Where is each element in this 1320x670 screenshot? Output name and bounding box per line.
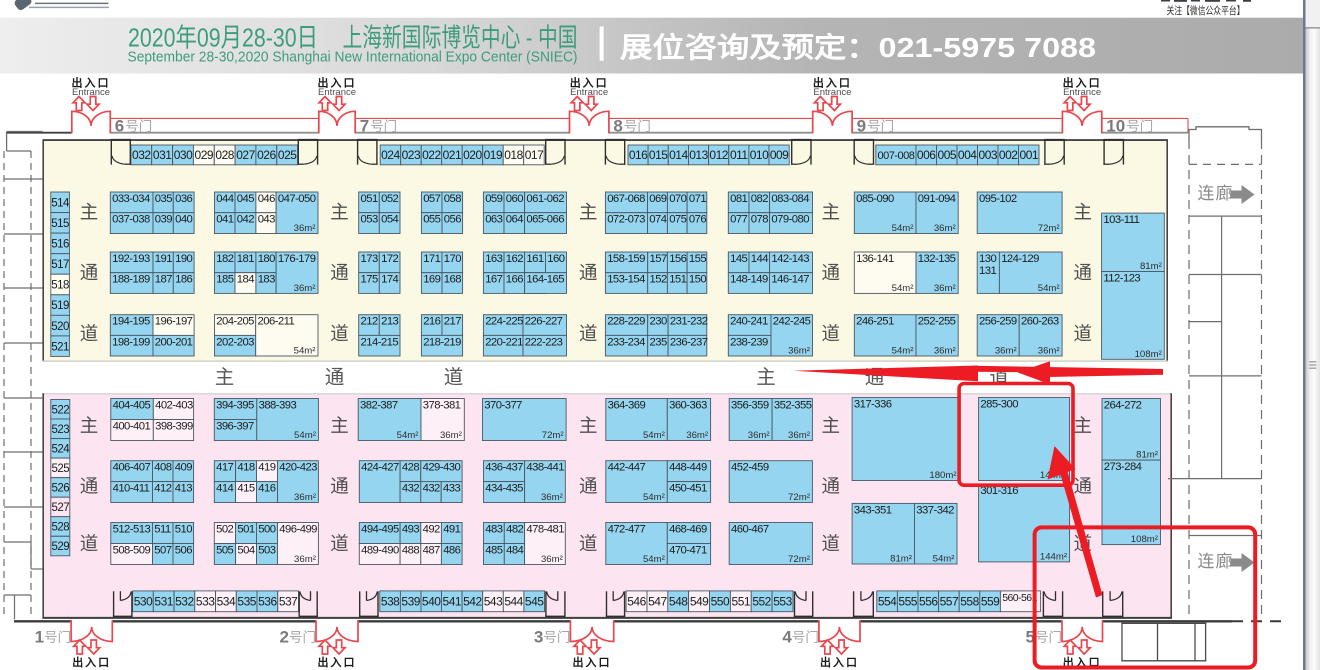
- svg-text:559: 559: [981, 595, 1000, 609]
- svg-text:524: 524: [51, 444, 70, 456]
- svg-text:526: 526: [51, 483, 69, 495]
- svg-text:488: 488: [402, 545, 419, 557]
- svg-text:204-205: 204-205: [216, 316, 254, 328]
- svg-text:527: 527: [51, 502, 69, 514]
- svg-text:054: 054: [381, 214, 398, 226]
- svg-text:出入口: 出入口: [573, 655, 612, 669]
- svg-text:021: 021: [443, 148, 462, 162]
- svg-text:通: 通: [80, 262, 99, 283]
- svg-text:号门: 号门: [1126, 119, 1153, 134]
- svg-text:535: 535: [237, 595, 256, 609]
- svg-text:36m²: 36m²: [788, 430, 811, 441]
- svg-text:036: 036: [175, 193, 192, 205]
- svg-text:053: 053: [361, 214, 378, 226]
- svg-text:214-215: 214-215: [361, 336, 399, 348]
- svg-text:230: 230: [650, 316, 667, 328]
- svg-text:531: 531: [154, 595, 173, 609]
- svg-text:36m²: 36m²: [748, 430, 771, 441]
- svg-text:222-223: 222-223: [525, 336, 563, 348]
- svg-text:157: 157: [650, 253, 667, 265]
- svg-text:主: 主: [756, 367, 776, 389]
- svg-text:通: 通: [579, 262, 598, 283]
- svg-text:434-435: 434-435: [485, 483, 523, 495]
- svg-text:095-102: 095-102: [979, 193, 1017, 205]
- svg-text:557: 557: [940, 595, 959, 609]
- svg-text:482: 482: [506, 524, 523, 536]
- svg-text:009: 009: [770, 148, 789, 162]
- svg-text:545: 545: [525, 595, 544, 609]
- svg-text:主: 主: [821, 202, 840, 223]
- svg-text:2: 2: [280, 628, 289, 647]
- svg-text:9: 9: [857, 116, 866, 135]
- svg-text:412: 412: [154, 483, 171, 495]
- svg-text:079-080: 079-080: [771, 214, 809, 226]
- svg-text:438-441: 438-441: [526, 462, 564, 474]
- svg-text:025: 025: [278, 148, 297, 162]
- svg-text:4: 4: [782, 628, 792, 647]
- svg-text:550: 550: [711, 595, 730, 609]
- svg-text:231-232: 231-232: [670, 316, 708, 328]
- svg-text:005: 005: [938, 148, 957, 162]
- svg-text:027: 027: [236, 148, 255, 162]
- svg-text:404-405: 404-405: [113, 400, 151, 412]
- svg-text:36m²: 36m²: [788, 346, 811, 357]
- svg-text:54m²: 54m²: [294, 346, 317, 357]
- svg-text:道: 道: [821, 533, 840, 554]
- svg-text:503: 503: [258, 545, 275, 557]
- svg-text:370-377: 370-377: [484, 400, 522, 412]
- svg-text:396-397: 396-397: [216, 421, 254, 433]
- svg-text:通: 通: [821, 475, 840, 496]
- svg-text:548: 548: [669, 595, 688, 609]
- svg-text:394-395: 394-395: [216, 400, 254, 412]
- svg-text:220-221: 220-221: [485, 336, 523, 348]
- svg-text:510: 510: [175, 524, 192, 536]
- svg-text:024: 024: [381, 148, 400, 162]
- svg-text:057: 057: [423, 193, 440, 205]
- svg-text:514: 514: [51, 198, 70, 210]
- svg-text:180m²: 180m²: [929, 470, 957, 481]
- svg-text:通: 通: [1073, 475, 1092, 496]
- svg-text:470-471: 470-471: [669, 545, 707, 557]
- svg-text:522: 522: [51, 405, 69, 417]
- svg-text:076: 076: [689, 214, 706, 226]
- svg-text:542: 542: [463, 595, 482, 609]
- svg-text:356-359: 356-359: [731, 400, 769, 412]
- svg-text:124-129: 124-129: [1001, 253, 1039, 265]
- svg-text:406-407: 406-407: [113, 462, 151, 474]
- svg-text:528: 528: [51, 522, 69, 534]
- svg-text:144: 144: [751, 253, 768, 265]
- svg-text:道: 道: [821, 323, 840, 344]
- svg-text:36m²: 36m²: [995, 346, 1018, 357]
- svg-text:409: 409: [175, 462, 192, 474]
- svg-text:112-123: 112-123: [1103, 273, 1140, 285]
- svg-text:040: 040: [175, 214, 192, 226]
- svg-text:道: 道: [80, 323, 99, 344]
- svg-text:534: 534: [217, 595, 236, 609]
- svg-text:54m²: 54m²: [294, 430, 317, 441]
- svg-text:547: 547: [648, 595, 667, 609]
- svg-text:道: 道: [330, 323, 349, 344]
- svg-text:148-149: 148-149: [730, 274, 768, 286]
- svg-text:541: 541: [443, 595, 462, 609]
- svg-text:54m²: 54m²: [892, 223, 915, 234]
- svg-text:212: 212: [361, 316, 378, 328]
- svg-text:72m²: 72m²: [788, 554, 811, 565]
- svg-text:号门: 号门: [543, 630, 570, 645]
- svg-text:010: 010: [750, 148, 769, 162]
- svg-text:432: 432: [402, 483, 419, 495]
- svg-text:出入口: 出入口: [820, 655, 859, 669]
- svg-text:378-381: 378-381: [423, 400, 461, 412]
- svg-text:400-401: 400-401: [113, 421, 151, 433]
- svg-text:424-427: 424-427: [361, 462, 399, 474]
- svg-text:064: 064: [506, 214, 523, 226]
- svg-text:通: 通: [325, 367, 345, 389]
- svg-text:156: 156: [669, 253, 686, 265]
- svg-text:551: 551: [732, 595, 751, 609]
- svg-text:164-165: 164-165: [526, 274, 564, 286]
- svg-text:517: 517: [51, 259, 69, 271]
- svg-text:029: 029: [195, 148, 214, 162]
- svg-text:043: 043: [258, 214, 275, 226]
- svg-text:060: 060: [506, 193, 523, 205]
- svg-text:364-369: 364-369: [608, 400, 646, 412]
- svg-text:10: 10: [1106, 116, 1125, 135]
- svg-text:246-251: 246-251: [856, 316, 894, 328]
- svg-text:36m²: 36m²: [541, 492, 564, 503]
- svg-text:501: 501: [237, 524, 254, 536]
- svg-text:085-090: 085-090: [856, 193, 894, 205]
- svg-text:012: 012: [709, 148, 728, 162]
- svg-text:162: 162: [506, 253, 523, 265]
- svg-text:主: 主: [1073, 202, 1092, 223]
- svg-text:关注【微信公众平台】: 关注【微信公众平台】: [1167, 4, 1245, 17]
- svg-text:150: 150: [689, 274, 706, 286]
- svg-text:529: 529: [51, 541, 69, 553]
- svg-text:224-225: 224-225: [485, 316, 523, 328]
- svg-text:103-111: 103-111: [1103, 214, 1139, 226]
- svg-text:018: 018: [504, 148, 523, 162]
- svg-text:161: 161: [526, 253, 543, 265]
- svg-text:226-227: 226-227: [525, 316, 563, 328]
- svg-text:36m²: 36m²: [934, 346, 957, 357]
- svg-text:169: 169: [423, 274, 440, 286]
- svg-text:168: 168: [444, 274, 461, 286]
- svg-text:042: 042: [237, 214, 254, 226]
- svg-text:072-073: 072-073: [607, 214, 645, 226]
- svg-text:020: 020: [463, 148, 482, 162]
- svg-text:046: 046: [258, 193, 275, 205]
- svg-text:228-229: 228-229: [607, 316, 645, 328]
- svg-text:414: 414: [216, 483, 233, 495]
- svg-text:065-066: 065-066: [526, 214, 564, 226]
- svg-text:343-351: 343-351: [854, 504, 892, 516]
- svg-text:131: 131: [979, 265, 996, 277]
- svg-text:538: 538: [381, 595, 400, 609]
- svg-text:158-159: 158-159: [607, 253, 645, 265]
- svg-text:36m²: 36m²: [1038, 346, 1061, 357]
- svg-text:236-237: 236-237: [670, 336, 708, 348]
- svg-text:185: 185: [216, 274, 233, 286]
- svg-text:主: 主: [215, 367, 235, 389]
- svg-text:202-203: 202-203: [216, 336, 254, 348]
- svg-text:号门: 号门: [370, 119, 397, 134]
- svg-text:056: 056: [444, 214, 461, 226]
- svg-text:022: 022: [422, 148, 441, 162]
- svg-text:543: 543: [484, 595, 503, 609]
- svg-text:410-411: 410-411: [113, 483, 150, 495]
- svg-text:556: 556: [919, 595, 938, 609]
- svg-text:172: 172: [381, 253, 398, 265]
- svg-text:36m²: 36m²: [294, 492, 317, 503]
- svg-text:484: 484: [506, 545, 523, 557]
- svg-text:240-241: 240-241: [730, 316, 768, 328]
- svg-text:出入口: 出入口: [72, 655, 111, 669]
- svg-text:033-034: 033-034: [112, 193, 150, 205]
- svg-text:连廊: 连廊: [1198, 552, 1234, 571]
- svg-text:496-499: 496-499: [279, 524, 317, 536]
- svg-text:192-193: 192-193: [112, 253, 150, 265]
- svg-text:36m²: 36m²: [294, 223, 317, 234]
- svg-text:558: 558: [960, 595, 979, 609]
- svg-text:174: 174: [381, 274, 398, 286]
- svg-text:144m²: 144m²: [1040, 551, 1068, 562]
- svg-text:6: 6: [115, 116, 124, 135]
- svg-text:415: 415: [237, 483, 254, 495]
- svg-text:号门: 号门: [1035, 630, 1062, 645]
- svg-text:055: 055: [423, 214, 440, 226]
- svg-text:252-255: 252-255: [918, 316, 956, 328]
- svg-text:36m²: 36m²: [294, 283, 317, 294]
- svg-text:273-284: 273-284: [1104, 461, 1142, 473]
- svg-text:260-263: 260-263: [1021, 316, 1059, 328]
- svg-text:468-469: 468-469: [669, 524, 707, 536]
- svg-text:171: 171: [423, 253, 440, 265]
- svg-text:001: 001: [1020, 148, 1039, 162]
- svg-text:317-336: 317-336: [854, 399, 892, 411]
- svg-text:181: 181: [237, 253, 254, 265]
- svg-text:045: 045: [237, 193, 254, 205]
- svg-text:通: 通: [1073, 262, 1092, 283]
- svg-text:36m²: 36m²: [686, 430, 709, 441]
- svg-text:360-363: 360-363: [669, 400, 707, 412]
- svg-text:530: 530: [134, 595, 153, 609]
- svg-text:182: 182: [216, 253, 233, 265]
- svg-text:402-403: 402-403: [155, 400, 193, 412]
- svg-text:264-272: 264-272: [1104, 400, 1142, 412]
- svg-text:428: 428: [402, 462, 419, 474]
- svg-text:主: 主: [80, 202, 99, 223]
- svg-text:188-189: 188-189: [112, 274, 150, 286]
- svg-text:492: 492: [423, 524, 440, 536]
- svg-text:194-195: 194-195: [112, 316, 150, 328]
- svg-text:183: 183: [258, 274, 275, 286]
- svg-text:429-430: 429-430: [423, 462, 461, 474]
- svg-text:72m²: 72m²: [788, 492, 811, 503]
- svg-text:191: 191: [155, 253, 172, 265]
- svg-text:436-437: 436-437: [485, 462, 523, 474]
- svg-text:上海新国际博览中心 - 中国: 上海新国际博览中心 - 中国: [343, 23, 578, 53]
- svg-text:388-393: 388-393: [259, 400, 297, 412]
- svg-text:通: 通: [821, 262, 840, 283]
- svg-text:058: 058: [444, 193, 461, 205]
- svg-text:398-399: 398-399: [155, 421, 193, 433]
- svg-text:54m²: 54m²: [892, 346, 915, 357]
- svg-text:175: 175: [361, 274, 378, 286]
- svg-text:主: 主: [579, 415, 598, 436]
- svg-text:553: 553: [773, 595, 792, 609]
- svg-text:536: 536: [258, 595, 277, 609]
- svg-text:242-245: 242-245: [773, 316, 811, 328]
- svg-text:196-197: 196-197: [155, 316, 193, 328]
- svg-text:560-561: 560-561: [1002, 592, 1037, 604]
- svg-text:187: 187: [155, 274, 172, 286]
- svg-text:525: 525: [51, 463, 69, 475]
- svg-text:544: 544: [504, 595, 523, 609]
- svg-text:136-141: 136-141: [856, 253, 894, 265]
- svg-text:448-449: 448-449: [669, 462, 707, 474]
- svg-text:142-143: 142-143: [771, 253, 809, 265]
- svg-text:出入口: 出入口: [318, 655, 357, 669]
- svg-text:442-447: 442-447: [608, 462, 646, 474]
- svg-text:213: 213: [381, 316, 398, 328]
- svg-text:044: 044: [216, 193, 233, 205]
- svg-text:419: 419: [258, 462, 275, 474]
- svg-text:520: 520: [51, 321, 69, 333]
- svg-text:489-490: 489-490: [361, 545, 399, 557]
- svg-text:067-068: 067-068: [607, 193, 645, 205]
- svg-text:主: 主: [330, 415, 349, 436]
- svg-text:408: 408: [154, 462, 171, 474]
- svg-text:083-084: 083-084: [771, 193, 809, 205]
- svg-text:493: 493: [402, 524, 419, 536]
- svg-text:186: 186: [175, 274, 192, 286]
- svg-text:532: 532: [175, 595, 194, 609]
- svg-text:011: 011: [730, 148, 748, 162]
- svg-text:190: 190: [175, 253, 192, 265]
- svg-text:道: 道: [80, 533, 99, 554]
- svg-text:167: 167: [485, 274, 502, 286]
- svg-text:002: 002: [999, 148, 1018, 162]
- svg-text:337-342: 337-342: [916, 504, 954, 516]
- svg-text:108m²: 108m²: [1135, 349, 1163, 360]
- svg-text:420-423: 420-423: [279, 462, 317, 474]
- svg-text:163: 163: [485, 253, 502, 265]
- svg-text:道: 道: [330, 533, 349, 554]
- svg-text:主: 主: [1073, 415, 1092, 436]
- svg-text:039: 039: [155, 214, 172, 226]
- svg-text:道: 道: [579, 533, 598, 554]
- svg-text:155: 155: [689, 253, 706, 265]
- svg-text:061-062: 061-062: [526, 193, 564, 205]
- svg-text:078: 078: [751, 214, 768, 226]
- svg-text:519: 519: [51, 300, 69, 312]
- svg-text:217: 217: [444, 316, 461, 328]
- svg-text:主: 主: [330, 202, 349, 223]
- svg-text:146-147: 146-147: [771, 274, 809, 286]
- svg-text:082: 082: [751, 193, 768, 205]
- svg-text:015: 015: [649, 148, 668, 162]
- svg-text:478-481: 478-481: [526, 524, 564, 536]
- svg-text:546: 546: [627, 595, 646, 609]
- svg-text:54m²: 54m²: [643, 554, 666, 565]
- svg-text:72m²: 72m²: [1038, 223, 1061, 234]
- svg-text:153-154: 153-154: [607, 274, 645, 286]
- svg-text:037-038: 037-038: [112, 214, 150, 226]
- svg-text:54m²: 54m²: [892, 283, 915, 294]
- svg-text:36m²: 36m²: [934, 283, 957, 294]
- svg-text:539: 539: [401, 595, 420, 609]
- svg-text:81m²: 81m²: [890, 554, 913, 565]
- svg-text:198-199: 198-199: [112, 336, 150, 348]
- svg-text:号门: 号门: [624, 119, 651, 134]
- svg-text:主: 主: [579, 202, 598, 223]
- svg-text:81m²: 81m²: [1136, 450, 1159, 461]
- svg-text:通: 通: [330, 262, 349, 283]
- svg-text:003: 003: [979, 148, 998, 162]
- svg-text:235: 235: [650, 336, 667, 348]
- svg-text:132-135: 132-135: [918, 253, 956, 265]
- svg-text:491: 491: [443, 524, 460, 536]
- svg-text:494-495: 494-495: [361, 524, 399, 536]
- svg-text:502: 502: [216, 524, 233, 536]
- svg-text:54m²: 54m²: [643, 430, 666, 441]
- svg-text:433: 433: [443, 483, 460, 495]
- svg-text:主: 主: [80, 415, 99, 436]
- svg-text:36m²: 36m²: [440, 430, 463, 441]
- svg-text:075: 075: [669, 214, 686, 226]
- svg-text:54m²: 54m²: [643, 492, 666, 503]
- svg-text:3: 3: [534, 628, 543, 647]
- svg-text:460-467: 460-467: [731, 524, 769, 536]
- svg-text:160: 160: [547, 253, 564, 265]
- svg-text:54m²: 54m²: [1038, 283, 1061, 294]
- svg-text:352-355: 352-355: [774, 400, 812, 412]
- svg-text:256-259: 256-259: [979, 316, 1017, 328]
- svg-text:504: 504: [237, 545, 254, 557]
- svg-text:023: 023: [402, 148, 421, 162]
- svg-text:512-513: 512-513: [113, 524, 151, 536]
- svg-text:道: 道: [1073, 323, 1092, 344]
- svg-text:285-300: 285-300: [980, 399, 1018, 411]
- svg-text:233-234: 233-234: [607, 336, 645, 348]
- svg-text:511: 511: [154, 524, 171, 536]
- svg-text:130: 130: [979, 253, 996, 265]
- svg-text:166: 166: [506, 274, 523, 286]
- svg-text:416: 416: [258, 483, 275, 495]
- svg-text:026: 026: [257, 148, 276, 162]
- svg-text:091-094: 091-094: [918, 193, 956, 205]
- svg-text:450-451: 450-451: [669, 483, 707, 495]
- svg-text:051: 051: [361, 193, 378, 205]
- svg-text:540: 540: [422, 595, 441, 609]
- svg-text:81m²: 81m²: [1140, 261, 1163, 272]
- svg-text:486: 486: [443, 545, 460, 557]
- svg-text:555: 555: [898, 595, 917, 609]
- svg-text:184: 184: [237, 274, 254, 286]
- svg-text:176-179: 176-179: [278, 253, 316, 265]
- svg-text:052: 052: [381, 193, 398, 205]
- svg-text:413: 413: [175, 483, 192, 495]
- svg-text:028: 028: [215, 148, 234, 162]
- svg-text:8: 8: [613, 116, 622, 135]
- svg-text:006: 006: [917, 148, 936, 162]
- svg-text:472-477: 472-477: [608, 524, 646, 536]
- svg-text:152: 152: [650, 274, 667, 286]
- svg-text:72m²: 72m²: [542, 430, 565, 441]
